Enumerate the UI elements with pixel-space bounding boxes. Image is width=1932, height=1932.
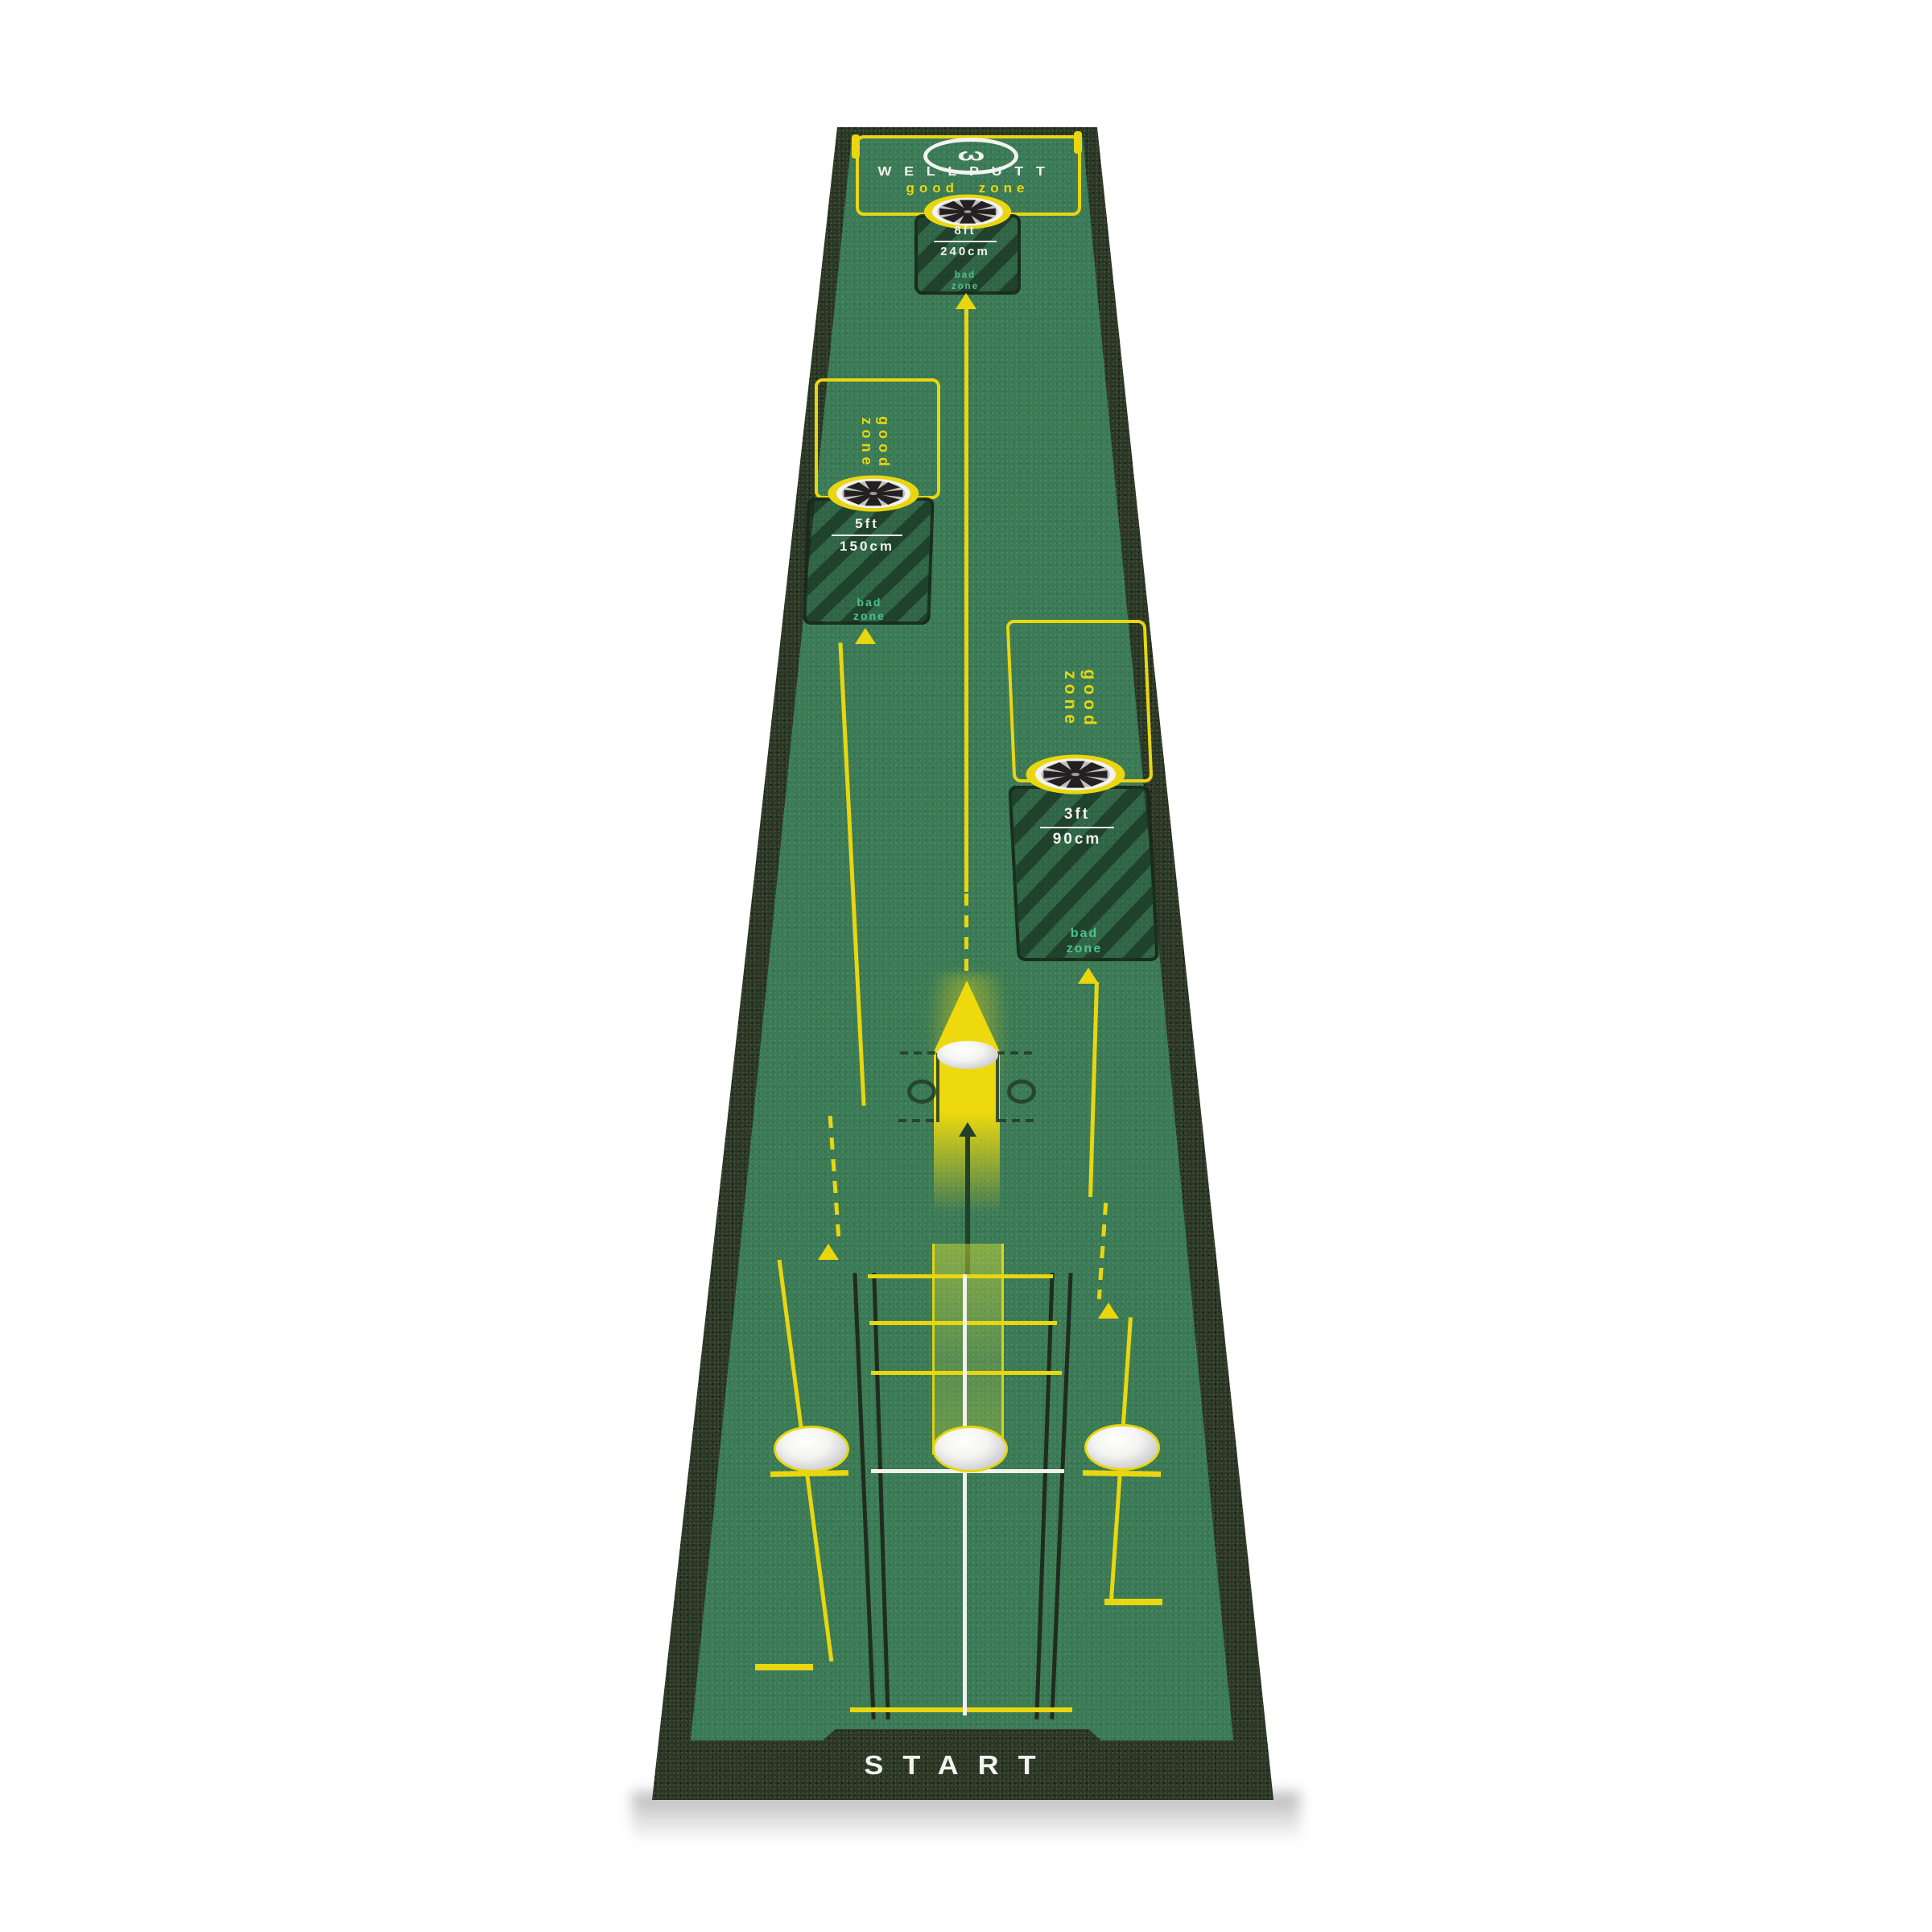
gate-rail-right bbox=[996, 1053, 999, 1122]
gate-rail-left bbox=[936, 1053, 939, 1122]
good-zone-corner-left bbox=[852, 134, 860, 159]
gate-circle-right bbox=[1007, 1080, 1036, 1104]
guide-line-center-dashed bbox=[964, 894, 968, 979]
guide-arrow-5ft-upper bbox=[855, 628, 876, 644]
distance-8ft-feet: 8ft bbox=[954, 224, 976, 237]
golf-ball-right bbox=[1084, 1424, 1160, 1471]
brand-name: WELLPUTT bbox=[846, 165, 1089, 180]
guide-arrow-3ft-lower bbox=[1098, 1302, 1119, 1319]
distance-5ft-cm: 150cm bbox=[840, 539, 894, 554]
bad-zone-label-3ft: bad zone bbox=[1036, 926, 1133, 956]
tee-bar-5ft-lower bbox=[755, 1664, 813, 1670]
grid-center-line bbox=[963, 1274, 967, 1715]
hole-5ft bbox=[827, 475, 920, 512]
golf-ball-left bbox=[774, 1426, 849, 1472]
grid-crossline-1 bbox=[868, 1274, 1053, 1278]
distance-rule bbox=[1040, 827, 1114, 828]
grid-crossline-bottom bbox=[850, 1707, 1072, 1712]
gate-dash-bottom-right bbox=[998, 1119, 1037, 1122]
logo-glyph: ω bbox=[957, 147, 985, 164]
distance-rule bbox=[832, 535, 902, 536]
distance-rule bbox=[934, 241, 997, 242]
gate-dash-top-right bbox=[997, 1051, 1035, 1055]
gate-dash-top-left bbox=[900, 1051, 939, 1055]
distance-5ft-feet: 5ft bbox=[855, 516, 879, 531]
gate-circle-left bbox=[907, 1080, 936, 1104]
golf-ball-center-start bbox=[937, 1041, 998, 1069]
bad-zone-label-8ft: bad zone bbox=[920, 270, 1010, 293]
distance-8ft-cm: 240cm bbox=[940, 245, 990, 258]
scene: START ω WELLPUTT good zone 8ft 240cm bad… bbox=[0, 0, 1932, 1932]
good-zone-label-3ft: good zone bbox=[1060, 639, 1099, 760]
golf-ball-center bbox=[932, 1426, 1008, 1472]
gate-dash-bottom-left bbox=[898, 1119, 937, 1122]
distance-3ft-cm: 90cm bbox=[1053, 831, 1102, 848]
guide-arrow-5ft-lower bbox=[818, 1244, 839, 1260]
guide-arrow-3ft-upper bbox=[1078, 968, 1099, 984]
guide-arrow-center bbox=[956, 293, 976, 309]
start-label: START bbox=[831, 1750, 1088, 1781]
hole-3ft bbox=[1025, 754, 1126, 795]
distance-5ft: 5ft 150cm bbox=[820, 515, 914, 555]
distance-3ft: 3ft 90cm bbox=[1029, 805, 1125, 849]
distance-8ft: 8ft 240cm bbox=[920, 223, 1010, 259]
distance-3ft-feet: 3ft bbox=[1064, 806, 1090, 823]
tee-bar-3ft-lower bbox=[1104, 1599, 1162, 1605]
bad-zone-label-5ft: bad zone bbox=[823, 596, 916, 623]
good-zone-corner-right bbox=[1074, 131, 1082, 154]
guide-line-center-solid bbox=[964, 308, 968, 892]
